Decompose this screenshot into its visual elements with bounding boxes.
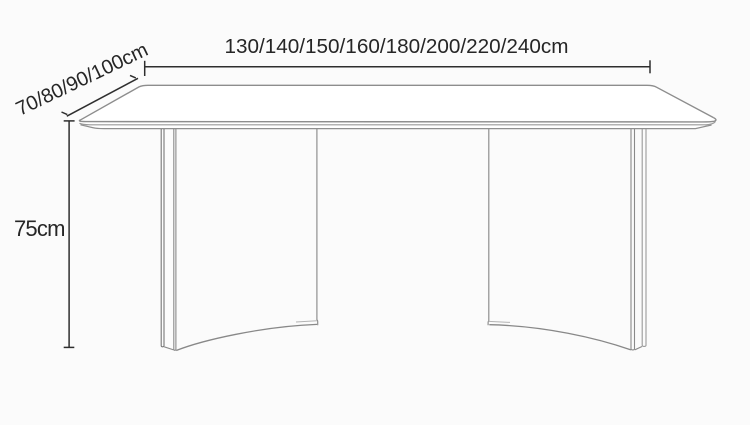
svg-text:75cm: 75cm bbox=[14, 216, 65, 241]
svg-text:130/140/150/160/180/200/220/24: 130/140/150/160/180/200/220/240cm bbox=[225, 35, 569, 58]
